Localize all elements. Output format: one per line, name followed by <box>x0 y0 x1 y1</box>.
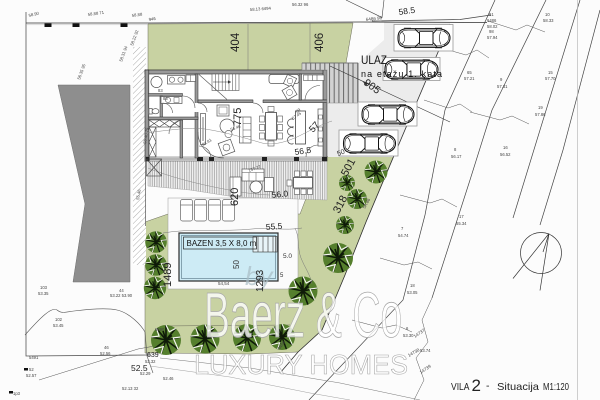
svg-text:18: 18 <box>410 283 415 288</box>
svg-text:55.34: 55.34 <box>456 221 467 226</box>
svg-text:Baerz & Co: Baerz & Co <box>204 279 402 351</box>
svg-text:BAZEN 3,5 X 8,0 m: BAZEN 3,5 X 8,0 m <box>187 239 257 248</box>
svg-text:639: 639 <box>147 352 159 359</box>
svg-text:52.57: 52.57 <box>26 373 37 378</box>
svg-text:-: - <box>486 380 490 392</box>
svg-text:53.74: 53.74 <box>420 348 431 353</box>
svg-text:15: 15 <box>548 70 553 75</box>
svg-text:46: 46 <box>104 345 109 350</box>
svg-text:2: 2 <box>472 376 481 395</box>
svg-text:19: 19 <box>538 105 543 110</box>
svg-text:83: 83 <box>158 88 163 93</box>
svg-text:52.46: 52.46 <box>163 376 174 381</box>
svg-text:16: 16 <box>503 145 508 150</box>
svg-text:54.74: 54.74 <box>398 233 409 238</box>
svg-text:5.0: 5.0 <box>283 253 292 260</box>
svg-text:53.05: 53.05 <box>407 290 418 295</box>
svg-text:57.94: 57.94 <box>487 35 498 40</box>
svg-text:Situacija: Situacija <box>497 381 539 393</box>
svg-text:103: 103 <box>40 285 48 290</box>
svg-text:58.33: 58.33 <box>543 18 554 23</box>
svg-text:52.32: 52.32 <box>145 359 156 364</box>
svg-text:52.56: 52.56 <box>100 351 111 356</box>
svg-text:1p3: 1p3 <box>13 391 21 396</box>
svg-text:404: 404 <box>230 32 242 52</box>
svg-text:10: 10 <box>545 12 550 17</box>
svg-text:56.32 96: 56.32 96 <box>292 2 309 7</box>
svg-text:65: 65 <box>467 70 472 75</box>
svg-text:53.45: 53.45 <box>53 323 64 328</box>
svg-text:85: 85 <box>163 96 168 101</box>
svg-text:5491: 5491 <box>29 355 39 360</box>
svg-text:53.22 53.90: 53.22 53.90 <box>110 293 133 298</box>
svg-text:620: 620 <box>229 188 241 206</box>
svg-text:56.0: 56.0 <box>271 188 289 200</box>
svg-text:56.17: 56.17 <box>451 154 462 159</box>
svg-text:57.86: 57.86 <box>535 112 546 117</box>
svg-text:ULAZ: ULAZ <box>361 53 387 67</box>
svg-text:50: 50 <box>232 260 241 269</box>
svg-text:52.13 32: 52.13 32 <box>122 386 139 391</box>
svg-text:1489: 1489 <box>162 263 174 287</box>
svg-text:52: 52 <box>29 367 34 372</box>
svg-text:57.21: 57.21 <box>464 76 475 81</box>
svg-text:LUXURY HOMES: LUXURY HOMES <box>194 349 408 380</box>
svg-text:6490: 6490 <box>155 327 165 332</box>
svg-text:52.29: 52.29 <box>140 371 151 376</box>
svg-text:102: 102 <box>55 317 63 322</box>
svg-text:6486: 6486 <box>487 18 497 23</box>
svg-text:98: 98 <box>489 29 494 34</box>
svg-text:53.35: 53.35 <box>38 291 49 296</box>
svg-text:57.31: 57.31 <box>497 84 508 89</box>
svg-text:57.70: 57.70 <box>545 76 556 81</box>
svg-text:na etažu 1. kata: na etažu 1. kata <box>361 69 442 79</box>
svg-text:406: 406 <box>314 33 326 52</box>
svg-text:M1:120: M1:120 <box>543 381 569 393</box>
svg-text:56.52: 56.52 <box>500 152 511 157</box>
svg-text:61: 61 <box>489 12 494 17</box>
svg-text:VILA: VILA <box>451 381 470 393</box>
svg-text:17: 17 <box>459 214 464 219</box>
svg-text:55.5: 55.5 <box>265 221 282 232</box>
